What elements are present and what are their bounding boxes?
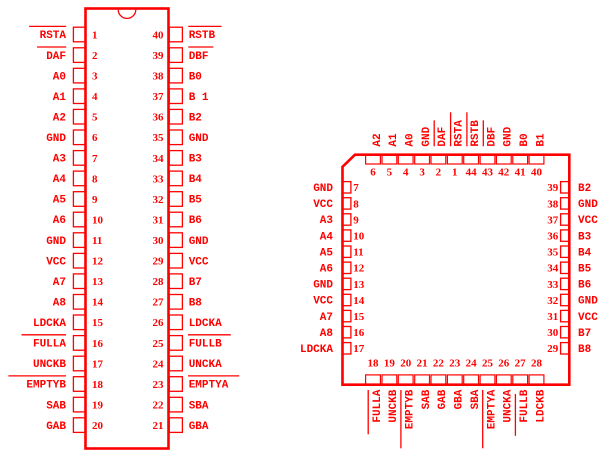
svg-text:22: 22 xyxy=(433,358,445,370)
svg-text:RSTA: RSTA xyxy=(454,120,466,147)
svg-text:36: 36 xyxy=(547,231,559,243)
svg-text:17: 17 xyxy=(353,343,365,355)
svg-text:GND: GND xyxy=(313,183,333,195)
svg-text:RSTB: RSTB xyxy=(470,120,482,147)
svg-text:EMPTYA: EMPTYA xyxy=(486,389,498,429)
svg-text:32: 32 xyxy=(547,295,559,307)
svg-text:19: 19 xyxy=(92,400,104,412)
svg-text:11: 11 xyxy=(92,235,102,247)
svg-text:GND: GND xyxy=(46,236,66,248)
svg-text:DBF: DBF xyxy=(486,127,498,147)
svg-text:A3: A3 xyxy=(320,215,334,227)
svg-text:FULLB: FULLB xyxy=(189,339,222,351)
svg-text:A6: A6 xyxy=(53,215,66,227)
svg-text:44: 44 xyxy=(466,167,478,179)
svg-text:GND: GND xyxy=(46,133,66,145)
svg-text:VCC: VCC xyxy=(578,215,598,227)
svg-text:LDCKB: LDCKB xyxy=(535,389,547,422)
svg-text:B8: B8 xyxy=(189,298,203,310)
svg-text:35: 35 xyxy=(547,247,559,259)
svg-text:A0: A0 xyxy=(405,133,417,146)
svg-text:SAB: SAB xyxy=(46,400,66,412)
svg-text:4: 4 xyxy=(403,167,409,179)
svg-text:A5: A5 xyxy=(53,195,67,207)
svg-text:B5: B5 xyxy=(189,195,203,207)
svg-text:B8: B8 xyxy=(578,344,592,356)
svg-text:39: 39 xyxy=(547,182,559,194)
svg-text:14: 14 xyxy=(92,297,104,309)
svg-text:30: 30 xyxy=(153,235,165,247)
svg-text:A2: A2 xyxy=(372,133,384,146)
svg-text:36: 36 xyxy=(153,112,165,124)
svg-text:LDCKA: LDCKA xyxy=(300,344,333,356)
svg-text:23: 23 xyxy=(153,379,165,391)
svg-text:A1: A1 xyxy=(53,92,67,104)
svg-text:B2: B2 xyxy=(189,112,202,124)
svg-text:16: 16 xyxy=(353,327,365,339)
svg-text:B1: B1 xyxy=(535,133,547,147)
svg-text:7: 7 xyxy=(92,153,98,165)
svg-text:A2: A2 xyxy=(53,112,66,124)
svg-text:VCC: VCC xyxy=(189,256,209,268)
svg-text:9: 9 xyxy=(92,194,98,206)
svg-text:A8: A8 xyxy=(53,298,67,310)
svg-text:42: 42 xyxy=(498,167,510,179)
svg-text:34: 34 xyxy=(153,153,165,165)
svg-text:22: 22 xyxy=(153,400,165,412)
svg-text:VCC: VCC xyxy=(578,312,598,324)
svg-text:A1: A1 xyxy=(388,133,400,147)
svg-text:1: 1 xyxy=(452,167,458,179)
svg-text:A7: A7 xyxy=(320,312,333,324)
svg-text:16: 16 xyxy=(92,338,104,350)
svg-text:A7: A7 xyxy=(53,277,66,289)
svg-text:EMPTYA: EMPTYA xyxy=(189,380,229,392)
svg-text:RSTA: RSTA xyxy=(40,30,67,42)
svg-text:UNCKA: UNCKA xyxy=(503,389,515,422)
svg-text:10: 10 xyxy=(92,214,104,226)
svg-text:14: 14 xyxy=(353,295,365,307)
svg-text:VCC: VCC xyxy=(46,256,66,268)
svg-text:4: 4 xyxy=(92,91,98,103)
svg-text:6: 6 xyxy=(370,167,376,179)
svg-text:21: 21 xyxy=(153,420,164,432)
svg-text:DBF: DBF xyxy=(189,51,209,63)
svg-text:UNCKA: UNCKA xyxy=(189,359,222,371)
svg-text:23: 23 xyxy=(449,358,461,370)
svg-text:DAF: DAF xyxy=(437,127,449,147)
svg-text:32: 32 xyxy=(153,194,165,206)
svg-text:LDCKA: LDCKA xyxy=(33,318,66,330)
svg-text:6: 6 xyxy=(92,132,98,144)
svg-text:10: 10 xyxy=(353,231,365,243)
svg-text:LDCKA: LDCKA xyxy=(189,318,222,330)
svg-text:26: 26 xyxy=(498,358,510,370)
svg-text:FULLA: FULLA xyxy=(372,389,384,422)
svg-text:37: 37 xyxy=(153,91,165,103)
svg-text:19: 19 xyxy=(384,358,396,370)
svg-text:20: 20 xyxy=(92,420,104,432)
svg-text:5: 5 xyxy=(387,167,393,179)
svg-text:SAB: SAB xyxy=(421,389,433,409)
svg-text:25: 25 xyxy=(482,358,494,370)
svg-text:31: 31 xyxy=(153,214,164,226)
svg-text:GBA: GBA xyxy=(454,389,466,409)
svg-text:21: 21 xyxy=(417,358,428,370)
svg-text:VCC: VCC xyxy=(313,199,333,211)
svg-text:RSTB: RSTB xyxy=(189,30,216,42)
svg-text:8: 8 xyxy=(353,198,359,210)
svg-text:A0: A0 xyxy=(53,71,66,83)
svg-text:40: 40 xyxy=(531,167,543,179)
svg-text:B3: B3 xyxy=(578,231,592,243)
svg-text:38: 38 xyxy=(547,198,559,210)
svg-text:GND: GND xyxy=(313,280,333,292)
svg-text:27: 27 xyxy=(515,358,527,370)
svg-text:15: 15 xyxy=(353,311,365,323)
svg-text:B0: B0 xyxy=(189,71,202,83)
svg-text:GAB: GAB xyxy=(437,389,449,409)
svg-text:FULLB: FULLB xyxy=(519,389,531,422)
svg-text:25: 25 xyxy=(153,338,165,350)
svg-text:UNCKB: UNCKB xyxy=(388,389,400,422)
svg-text:A3: A3 xyxy=(53,154,67,166)
svg-text:30: 30 xyxy=(547,327,559,339)
svg-text:34: 34 xyxy=(547,263,559,275)
svg-text:UNCKB: UNCKB xyxy=(33,359,66,371)
svg-text:41: 41 xyxy=(515,167,526,179)
svg-text:13: 13 xyxy=(353,279,365,291)
svg-text:33: 33 xyxy=(547,279,559,291)
svg-text:B6: B6 xyxy=(578,280,591,292)
svg-text:3: 3 xyxy=(92,71,98,83)
svg-text:A6: A6 xyxy=(320,264,333,276)
svg-text:GND: GND xyxy=(503,126,515,146)
svg-text:SBA: SBA xyxy=(470,389,482,409)
svg-text:GND: GND xyxy=(578,296,598,308)
svg-text:7: 7 xyxy=(353,182,359,194)
svg-text:1: 1 xyxy=(92,29,98,41)
svg-text:GBA: GBA xyxy=(189,421,209,433)
svg-text:24: 24 xyxy=(153,358,165,370)
svg-text:5: 5 xyxy=(92,112,98,124)
svg-text:29: 29 xyxy=(547,343,559,355)
svg-text:28: 28 xyxy=(531,358,543,370)
svg-text:39: 39 xyxy=(153,50,165,62)
svg-text:33: 33 xyxy=(153,173,165,185)
svg-text:43: 43 xyxy=(482,167,494,179)
svg-text:EMPTYB: EMPTYB xyxy=(26,380,66,392)
svg-text:35: 35 xyxy=(153,132,165,144)
svg-text:37: 37 xyxy=(547,214,559,226)
svg-text:11: 11 xyxy=(353,247,363,259)
svg-text:2: 2 xyxy=(92,50,98,62)
svg-text:EMPTYB: EMPTYB xyxy=(405,389,417,429)
svg-text:GND: GND xyxy=(421,126,433,146)
svg-text:B 1: B 1 xyxy=(189,92,209,104)
svg-text:2: 2 xyxy=(436,167,442,179)
svg-text:A4: A4 xyxy=(53,174,67,186)
svg-text:31: 31 xyxy=(547,311,558,323)
svg-text:15: 15 xyxy=(92,317,104,329)
svg-text:13: 13 xyxy=(92,276,104,288)
svg-text:29: 29 xyxy=(153,256,165,268)
svg-text:A8: A8 xyxy=(320,328,334,340)
svg-text:3: 3 xyxy=(419,167,425,179)
svg-text:GND: GND xyxy=(578,199,598,211)
svg-text:SBA: SBA xyxy=(189,400,209,412)
svg-text:12: 12 xyxy=(353,263,365,275)
svg-text:GND: GND xyxy=(189,133,209,145)
svg-text:B4: B4 xyxy=(578,247,592,259)
svg-text:B5: B5 xyxy=(578,264,592,276)
svg-text:38: 38 xyxy=(153,71,165,83)
svg-text:A5: A5 xyxy=(320,247,334,259)
svg-text:17: 17 xyxy=(92,358,104,370)
svg-text:B2: B2 xyxy=(578,183,591,195)
svg-text:24: 24 xyxy=(466,358,478,370)
svg-text:18: 18 xyxy=(368,358,380,370)
svg-text:18: 18 xyxy=(92,379,104,391)
svg-text:B0: B0 xyxy=(519,133,531,146)
svg-text:GND: GND xyxy=(189,236,209,248)
svg-text:12: 12 xyxy=(92,256,104,268)
svg-text:A4: A4 xyxy=(320,231,334,243)
svg-text:DAF: DAF xyxy=(46,51,66,63)
svg-text:FULLA: FULLA xyxy=(33,339,66,351)
svg-text:8: 8 xyxy=(92,173,98,185)
svg-text:28: 28 xyxy=(153,276,165,288)
svg-text:B7: B7 xyxy=(189,277,202,289)
svg-text:20: 20 xyxy=(400,358,412,370)
svg-text:B4: B4 xyxy=(189,174,203,186)
svg-text:9: 9 xyxy=(353,214,359,226)
svg-text:B3: B3 xyxy=(189,154,203,166)
svg-text:40: 40 xyxy=(153,29,165,41)
svg-text:GAB: GAB xyxy=(46,421,66,433)
svg-text:27: 27 xyxy=(153,297,165,309)
svg-text:B7: B7 xyxy=(578,328,591,340)
svg-text:B6: B6 xyxy=(189,215,202,227)
svg-text:26: 26 xyxy=(153,317,165,329)
svg-text:VCC: VCC xyxy=(313,296,333,308)
